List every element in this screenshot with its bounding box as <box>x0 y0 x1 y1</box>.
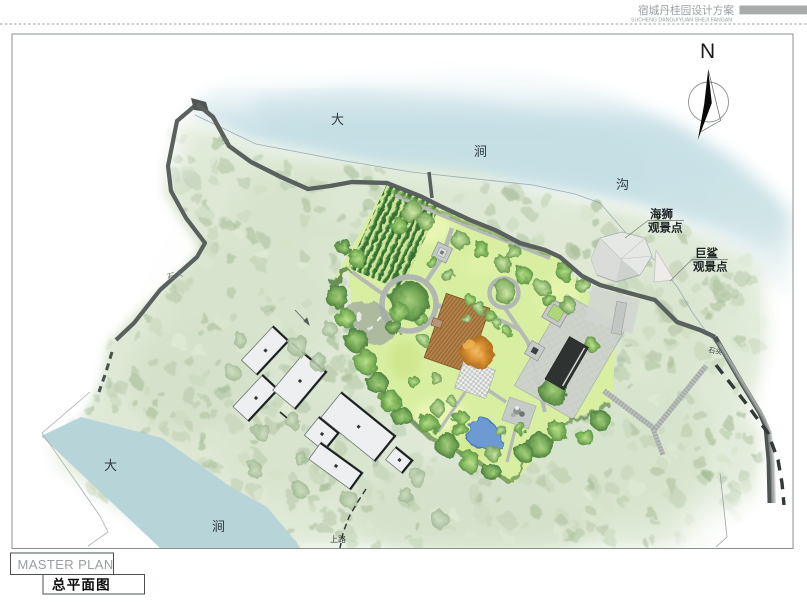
svg-text:头: 头 <box>221 135 231 146</box>
svg-text:宿城丹桂园设计方案: 宿城丹桂园设计方案 <box>638 3 734 17</box>
svg-text:观景点: 观景点 <box>648 221 683 235</box>
svg-text:MASTER PLAN: MASTER PLAN <box>18 557 114 572</box>
svg-text:上路: 上路 <box>330 534 346 544</box>
svg-text:海狮: 海狮 <box>650 207 673 221</box>
svg-text:观景点: 观景点 <box>693 260 728 274</box>
svg-text:涧: 涧 <box>212 519 225 534</box>
svg-text:沟: 沟 <box>616 177 629 192</box>
svg-text:大: 大 <box>104 458 117 473</box>
svg-text:总平面图: 总平面图 <box>52 577 111 593</box>
svg-text:N: N <box>700 40 715 63</box>
svg-text:SUCHENG DANGUIYUAN SHEJI FANGA: SUCHENG DANGUIYUAN SHEJI FANGAN <box>631 18 732 24</box>
svg-text:大: 大 <box>331 112 344 127</box>
svg-text:涧: 涧 <box>474 144 487 159</box>
svg-text:巨鲨: 巨鲨 <box>695 246 718 260</box>
